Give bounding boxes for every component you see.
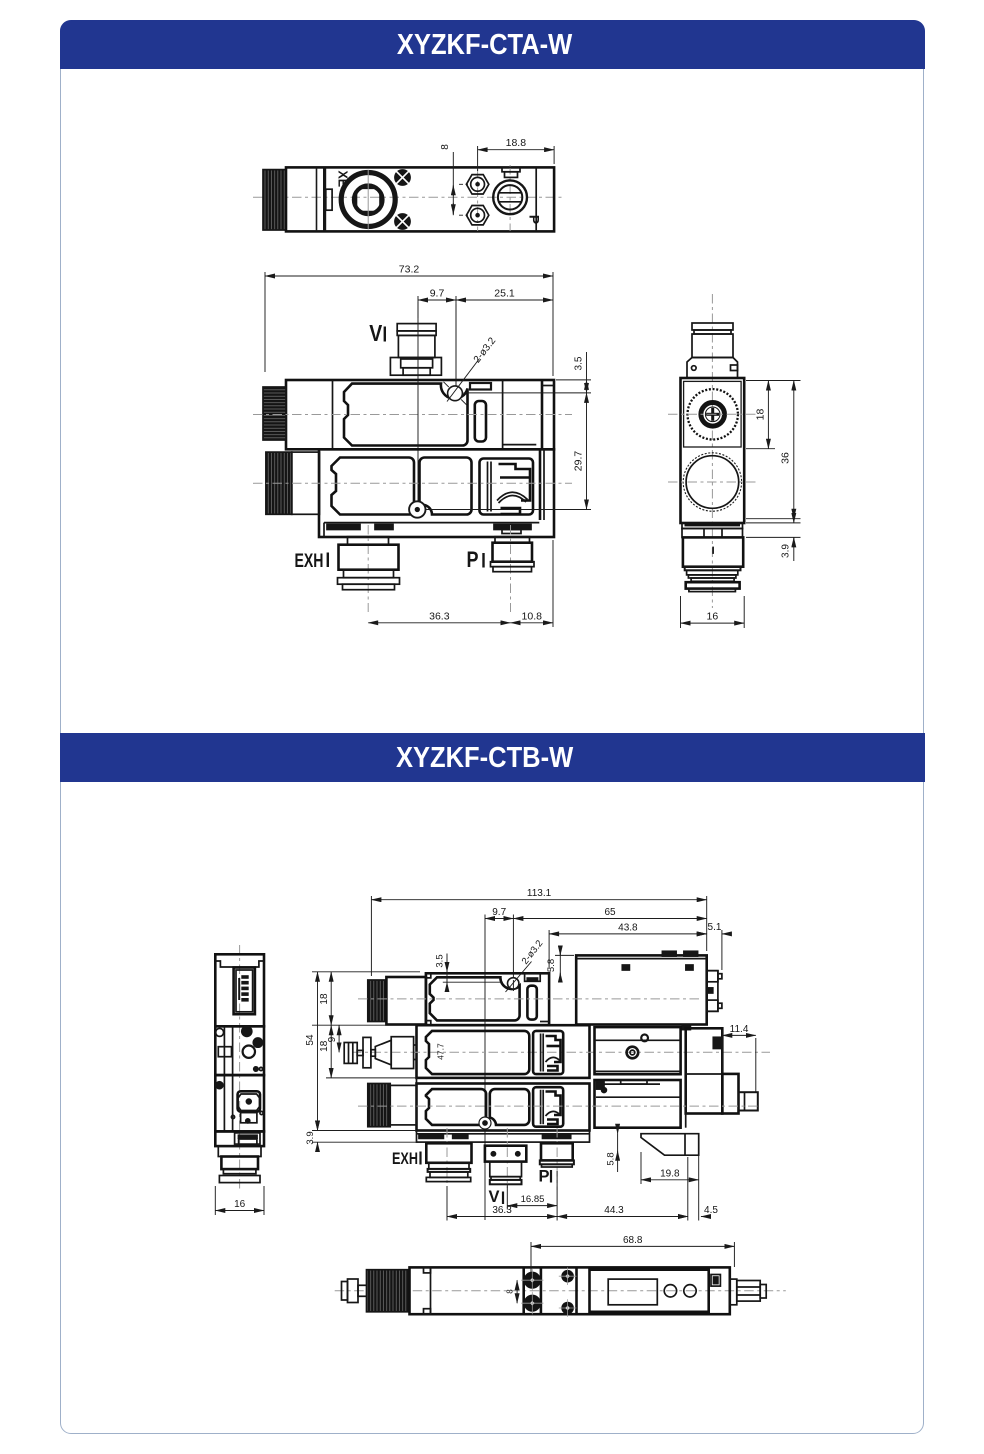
svg-text:25.1: 25.1 — [494, 288, 515, 300]
svg-text:18: 18 — [319, 993, 330, 1005]
svg-text:16.85: 16.85 — [521, 1194, 545, 1205]
svg-text:68.8: 68.8 — [623, 1235, 643, 1246]
svg-text:9.7: 9.7 — [430, 288, 445, 300]
svg-text:3.5: 3.5 — [573, 356, 584, 370]
svg-text:10.8: 10.8 — [522, 610, 543, 622]
svg-text:18.8: 18.8 — [506, 137, 527, 149]
svg-text:V: V — [369, 320, 383, 346]
svg-text:73.2: 73.2 — [399, 264, 420, 276]
svg-text:5.8: 5.8 — [606, 1152, 617, 1165]
svg-text:V: V — [488, 1188, 499, 1206]
svg-text:4.5: 4.5 — [704, 1205, 718, 1216]
svg-text:P: P — [538, 1168, 549, 1186]
svg-text:43.8: 43.8 — [618, 922, 638, 933]
svg-text:8: 8 — [506, 1289, 515, 1294]
svg-text:2-ø3.2: 2-ø3.2 — [520, 938, 546, 966]
svg-text:18: 18 — [754, 409, 766, 421]
svg-text:9.7: 9.7 — [492, 907, 506, 918]
svg-text:2-ø3.2: 2-ø3.2 — [472, 335, 499, 365]
svg-text:5.1: 5.1 — [708, 922, 722, 933]
svg-text:36: 36 — [780, 452, 792, 464]
svg-text:11.4: 11.4 — [730, 1024, 749, 1035]
svg-text:54: 54 — [305, 1034, 316, 1046]
svg-text:9: 9 — [327, 1036, 338, 1042]
svg-text:EXH: EXH — [295, 551, 324, 572]
svg-text:P: P — [467, 547, 479, 572]
svg-text:8: 8 — [440, 144, 451, 150]
svg-text:36.3: 36.3 — [492, 1205, 512, 1216]
svg-text:5.8: 5.8 — [546, 959, 557, 972]
svg-text:44.3: 44.3 — [604, 1205, 624, 1216]
svg-text:29.7: 29.7 — [572, 451, 584, 472]
svg-text:3.9: 3.9 — [781, 544, 792, 558]
svg-text:3.9: 3.9 — [305, 1131, 316, 1144]
svg-text:3.5: 3.5 — [435, 954, 446, 967]
svg-text:19.8: 19.8 — [660, 1168, 680, 1179]
svg-text:EXH: EXH — [392, 1150, 418, 1168]
svg-text:65: 65 — [604, 907, 616, 918]
svg-text:P: P — [527, 215, 543, 224]
svg-text:16: 16 — [707, 611, 719, 623]
svg-text:36.3: 36.3 — [429, 610, 450, 622]
svg-text:47.7: 47.7 — [436, 1043, 446, 1060]
svg-text:16: 16 — [234, 1199, 246, 1210]
svg-text:113.1: 113.1 — [527, 888, 552, 899]
